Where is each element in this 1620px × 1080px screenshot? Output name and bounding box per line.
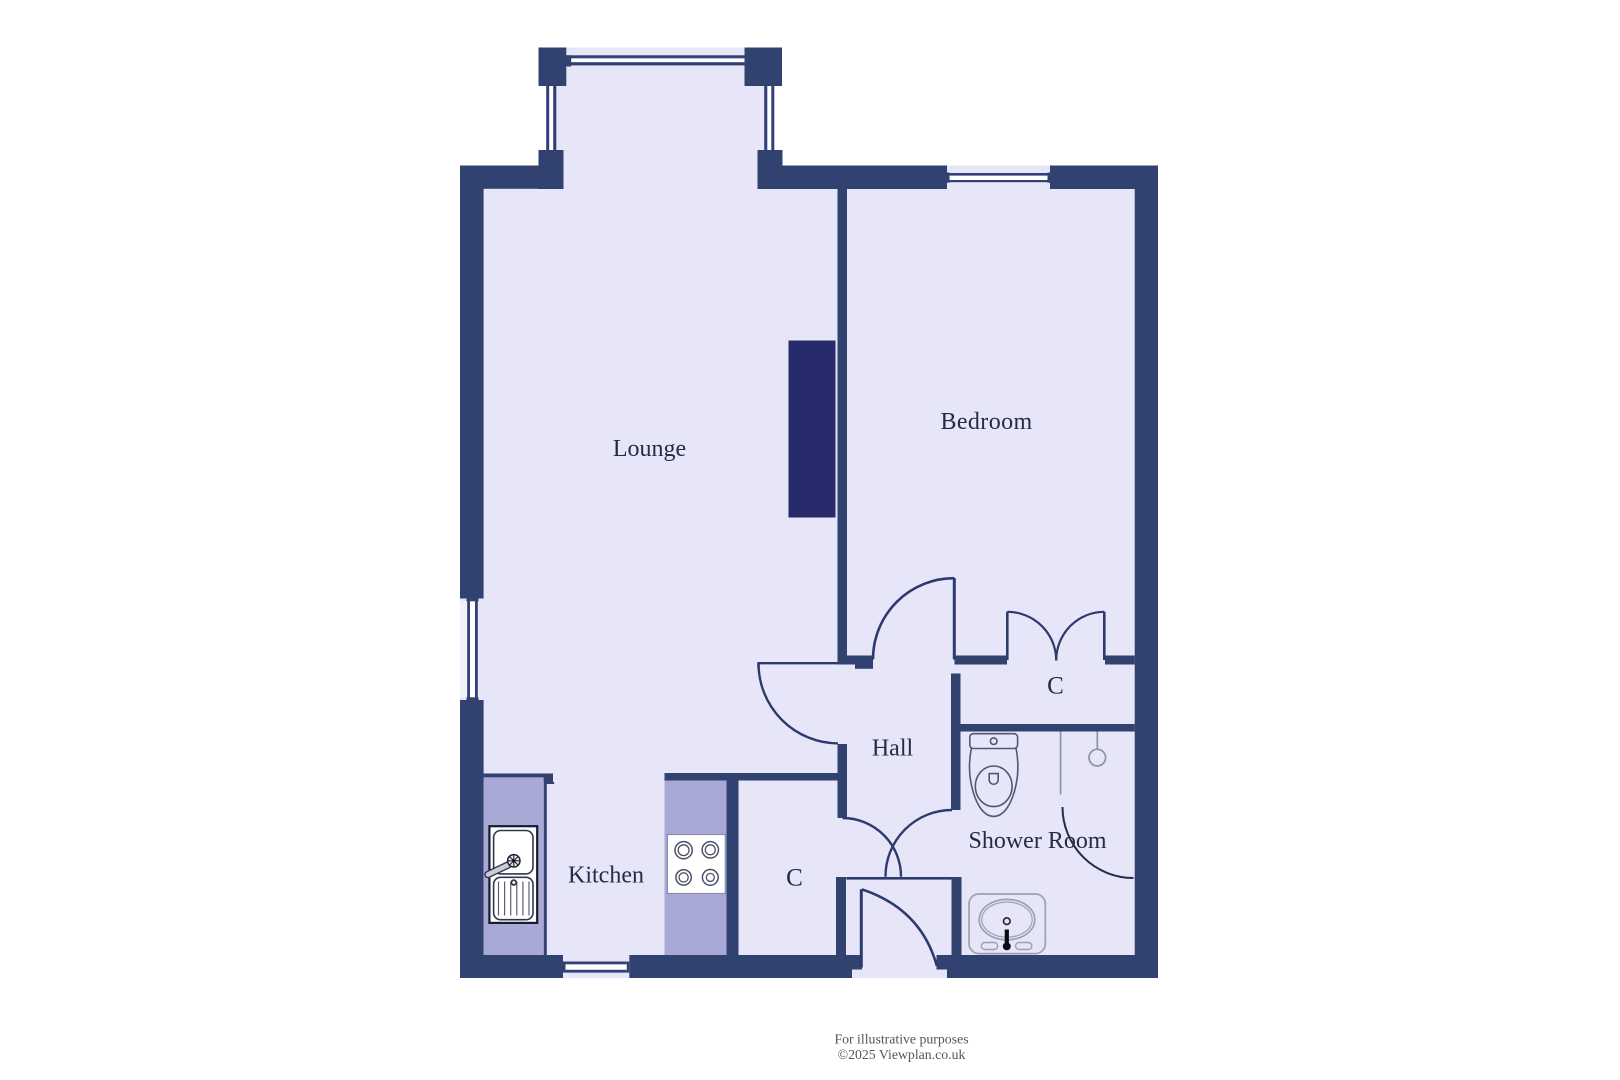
- svg-text:C: C: [1047, 673, 1064, 700]
- svg-text:Bedroom: Bedroom: [940, 409, 1032, 435]
- svg-text:Kitchen: Kitchen: [568, 863, 644, 889]
- svg-text:Shower Room: Shower Room: [969, 828, 1107, 854]
- svg-text:Lounge: Lounge: [613, 436, 686, 462]
- svg-text:C: C: [786, 865, 803, 892]
- svg-text:©2025 Viewplan.co.uk: ©2025 Viewplan.co.uk: [838, 1047, 966, 1062]
- svg-text:For illustrative purposes: For illustrative purposes: [834, 1031, 968, 1046]
- svg-text:Hall: Hall: [872, 736, 914, 762]
